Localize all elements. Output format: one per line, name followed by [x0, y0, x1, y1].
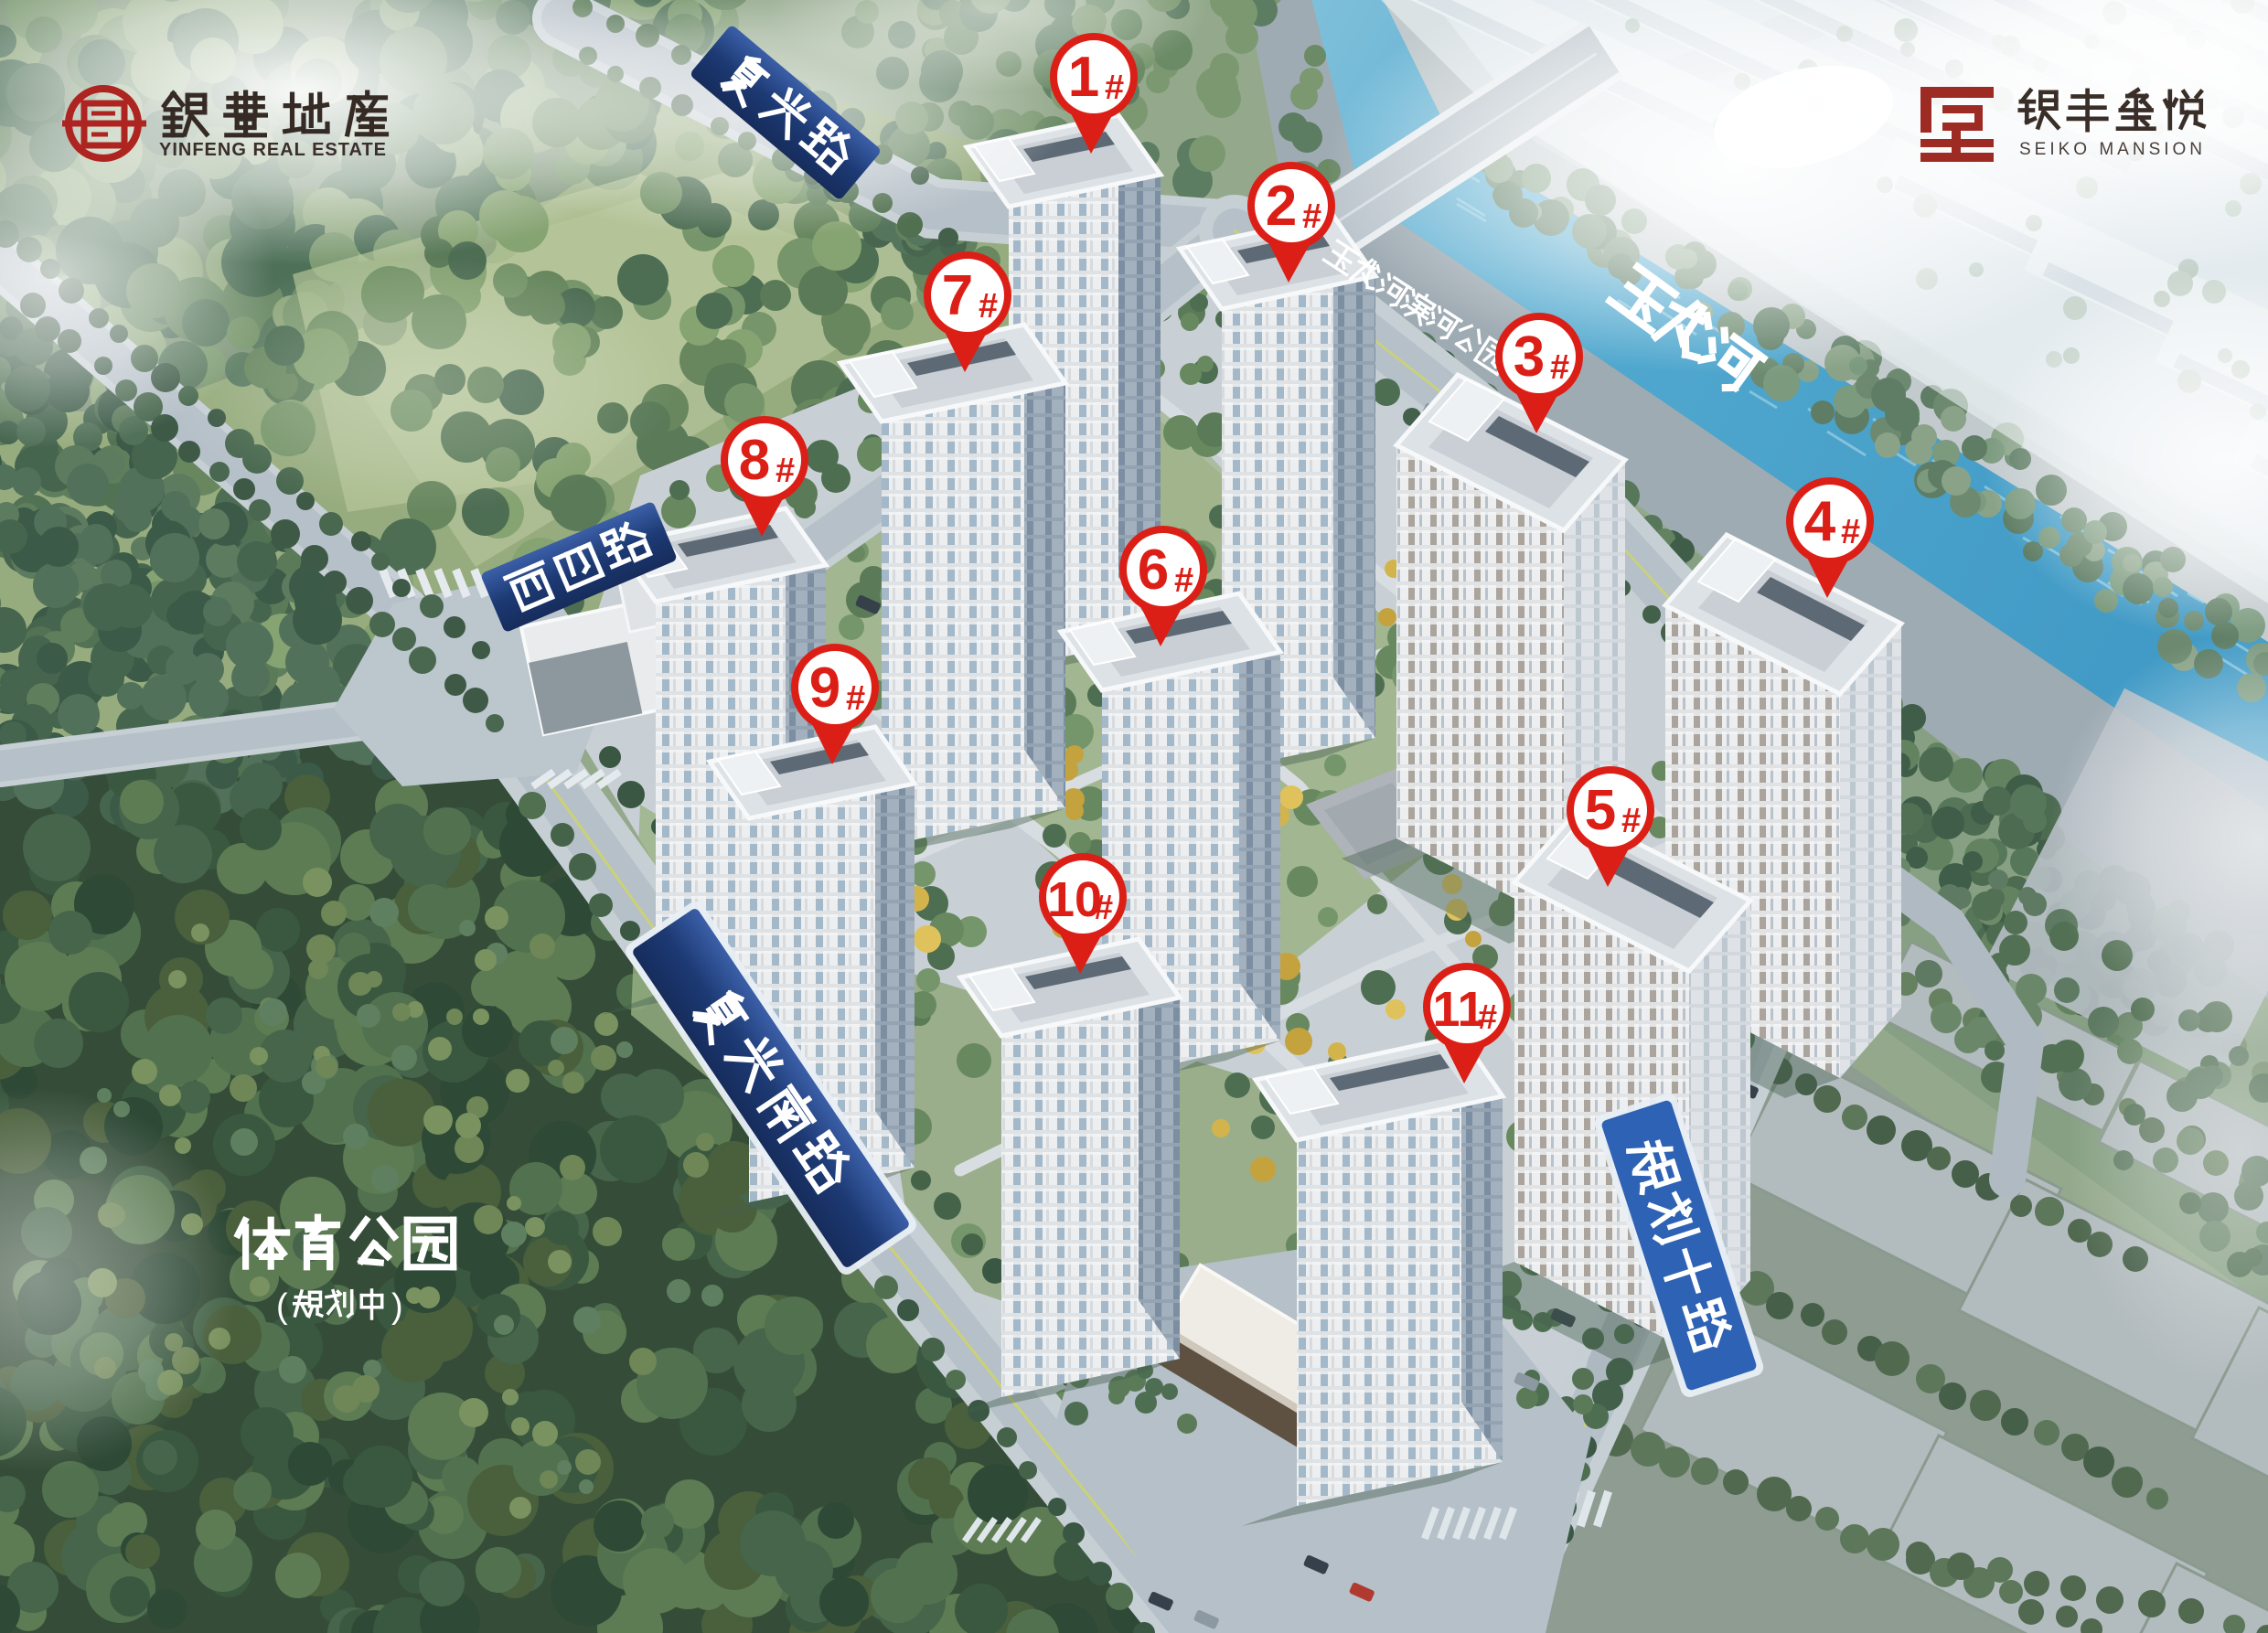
svg-text:#: #: [1478, 998, 1497, 1037]
svg-text:4: 4: [1804, 490, 1836, 553]
svg-text:8: 8: [739, 429, 770, 492]
svg-text:#: #: [1621, 802, 1641, 840]
svg-text:#: #: [776, 452, 795, 490]
svg-text:3: 3: [1514, 326, 1545, 389]
svg-text:#: #: [1841, 513, 1860, 551]
svg-text:#: #: [1550, 348, 1569, 387]
svg-text:1: 1: [1068, 46, 1099, 109]
svg-text:6: 6: [1138, 539, 1169, 602]
svg-text:#: #: [846, 679, 865, 718]
svg-text:YINFENG REAL ESTATE: YINFENG REAL ESTATE: [159, 140, 387, 160]
svg-text:#: #: [1302, 197, 1321, 236]
svg-text:(: (: [276, 1287, 288, 1326]
svg-text:#: #: [1105, 69, 1124, 107]
svg-text:#: #: [1174, 561, 1193, 600]
svg-text:#: #: [979, 287, 998, 326]
svg-text:11: 11: [1432, 982, 1484, 1037]
svg-text:9: 9: [809, 656, 840, 720]
svg-text:2: 2: [1266, 175, 1297, 238]
svg-text:5: 5: [1585, 779, 1616, 842]
svg-text:7: 7: [942, 264, 973, 327]
svg-text:#: #: [1094, 889, 1113, 927]
svg-text:): ): [391, 1287, 403, 1326]
svg-text:SEIKO MANSION: SEIKO MANSION: [2019, 140, 2206, 159]
